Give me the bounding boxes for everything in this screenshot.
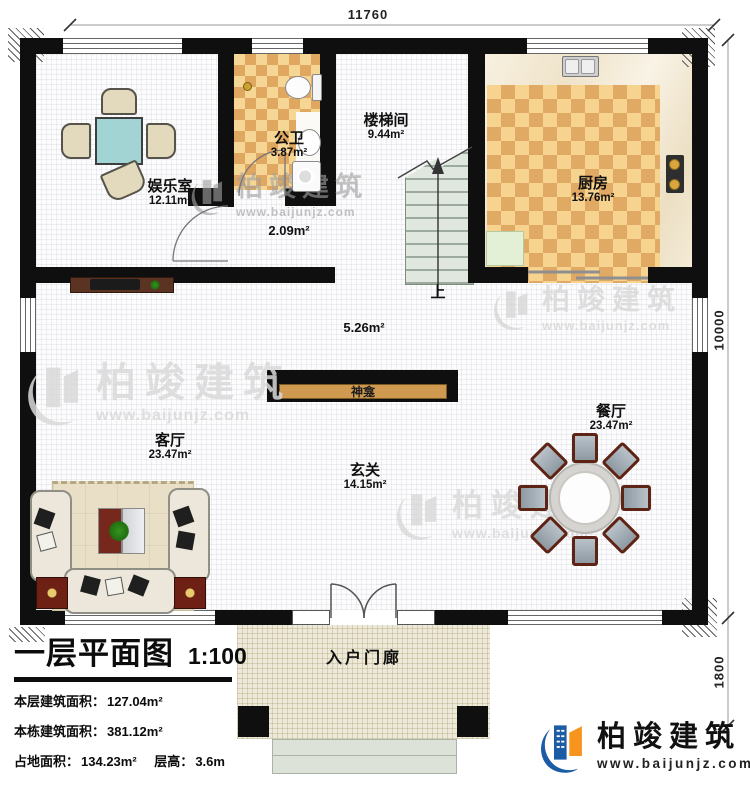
room-label-bathroom: 公卫 3.87m²: [271, 130, 307, 160]
porch-step-2: [272, 755, 457, 774]
wall-lamp: [243, 82, 252, 91]
window-left: [20, 298, 36, 352]
room-label-kitchen: 厨房 13.76m²: [572, 175, 615, 205]
brand-url: www.baijunjz.com: [597, 756, 750, 771]
pillow: [105, 577, 125, 597]
window-top-1: [63, 38, 182, 54]
side-table: [36, 577, 68, 609]
chair: [101, 88, 137, 115]
watermark-text: 柏竣建筑 www.baijunjz.com: [542, 286, 682, 333]
entry-sidelite-right: [397, 610, 435, 625]
room-label-living: 客厅 23.47m²: [149, 432, 192, 462]
chair: [61, 123, 91, 159]
room-label-stairwell: 楼梯间 9.44m²: [363, 112, 408, 142]
sink-basin: [581, 59, 595, 74]
wall-kitchen-south-left: [468, 267, 528, 283]
watermark-logo-icon: [392, 485, 444, 545]
watermark-url: www.baijunjz.com: [96, 407, 292, 425]
brand-text: 柏竣建筑 www.baijunjz.com: [597, 723, 750, 771]
title-block: 一层平面图 1:100 本层建筑面积：127.04m² 本栋建筑面积：381.1…: [14, 628, 247, 781]
drawing-scale: 1:100: [188, 643, 247, 670]
brand-logo-icon: [536, 716, 590, 778]
potted-plant: [150, 280, 160, 290]
area-row: 本层建筑面积：127.04m²: [14, 691, 247, 710]
area-label-hall: 5.26m²: [343, 321, 384, 336]
game-table: [95, 117, 143, 165]
kitchen-counter-mat: [486, 231, 524, 266]
porch-floor: [237, 625, 490, 739]
television: [90, 279, 140, 290]
side-table: [174, 577, 206, 609]
area-row: 占地面积：134.23m² 层高：3.6m: [14, 751, 247, 770]
stove-burner: [669, 159, 680, 170]
washing-machine: [292, 161, 321, 192]
brand-footer: 柏竣建筑 www.baijunjz.com: [536, 716, 750, 778]
watermark: 柏竣建筑 www.baijunjz.com: [188, 172, 368, 220]
watermark-logo-icon: [490, 283, 534, 335]
toilet-bowl: [285, 76, 311, 99]
chair: [572, 433, 598, 463]
dimension-top-label: 11760: [348, 7, 388, 22]
wall-kitchen-west: [468, 38, 485, 283]
wall-kitchen-south-right: [648, 267, 692, 283]
dimension-right-lower-label: 1800: [712, 656, 727, 689]
title-underline: [14, 677, 232, 682]
sink-basin: [565, 59, 579, 74]
dimension-right-upper-label: 10000: [712, 309, 727, 350]
area-row: 本栋建筑面积：381.12m²: [14, 721, 247, 740]
shrine-niche: 神龛: [279, 384, 447, 399]
stairs-up-label: 上: [430, 284, 445, 301]
pillow: [176, 531, 196, 551]
window-bottom-right: [508, 610, 662, 625]
window-top-3: [527, 38, 648, 54]
table-plant: [107, 519, 131, 543]
title-row: 一层平面图 1:100: [14, 628, 247, 673]
watermark-logo-icon: [22, 355, 88, 433]
watermark-text: 柏竣建筑 www.baijunjz.com: [96, 363, 292, 425]
window-right: [692, 298, 708, 352]
area-label-corridor: 2.09m²: [268, 224, 309, 239]
dimension-ticks-top: [64, 19, 720, 31]
brand-name: 柏竣建筑: [597, 723, 750, 752]
floorplan-canvas: 神龛 柏竣建筑 www.baijunjz.com 柏竣建筑 www.baiju: [0, 0, 750, 789]
wall-entertainment-south: [20, 267, 335, 283]
watermark-url: www.baijunjz.com: [236, 205, 368, 219]
room-label-entertainment: 娱乐室 12.11m²: [147, 178, 192, 208]
watermark-url: www.baijunjz.com: [542, 318, 682, 333]
porch-column-right: [457, 706, 488, 737]
window-top-2: [252, 38, 303, 54]
dining-table-top: [558, 471, 612, 525]
stove-burner: [669, 179, 680, 190]
dimension-ticks-right: [722, 34, 734, 732]
page-title: 一层平面图: [14, 628, 174, 673]
room-label-porch: 入户门廊: [326, 650, 402, 668]
watermark-name: 柏竣建筑: [542, 286, 682, 314]
chair: [572, 536, 598, 566]
room-label-dining: 餐厅 23.47m²: [590, 403, 633, 433]
watermark: 柏竣建筑 www.baijunjz.com: [490, 283, 682, 335]
watermark: 柏竣建筑 www.baijunjz.com: [22, 355, 292, 433]
chair: [518, 485, 548, 511]
shrine-label: 神龛: [351, 383, 375, 400]
chair: [146, 123, 176, 159]
watermark-logo-icon: [188, 172, 228, 220]
chair: [621, 485, 651, 511]
watermark-name: 柏竣建筑: [96, 363, 292, 403]
toilet-tank: [312, 74, 322, 101]
entry-sidelite-left: [292, 610, 330, 625]
room-label-foyer: 玄关 14.15m²: [344, 462, 387, 492]
